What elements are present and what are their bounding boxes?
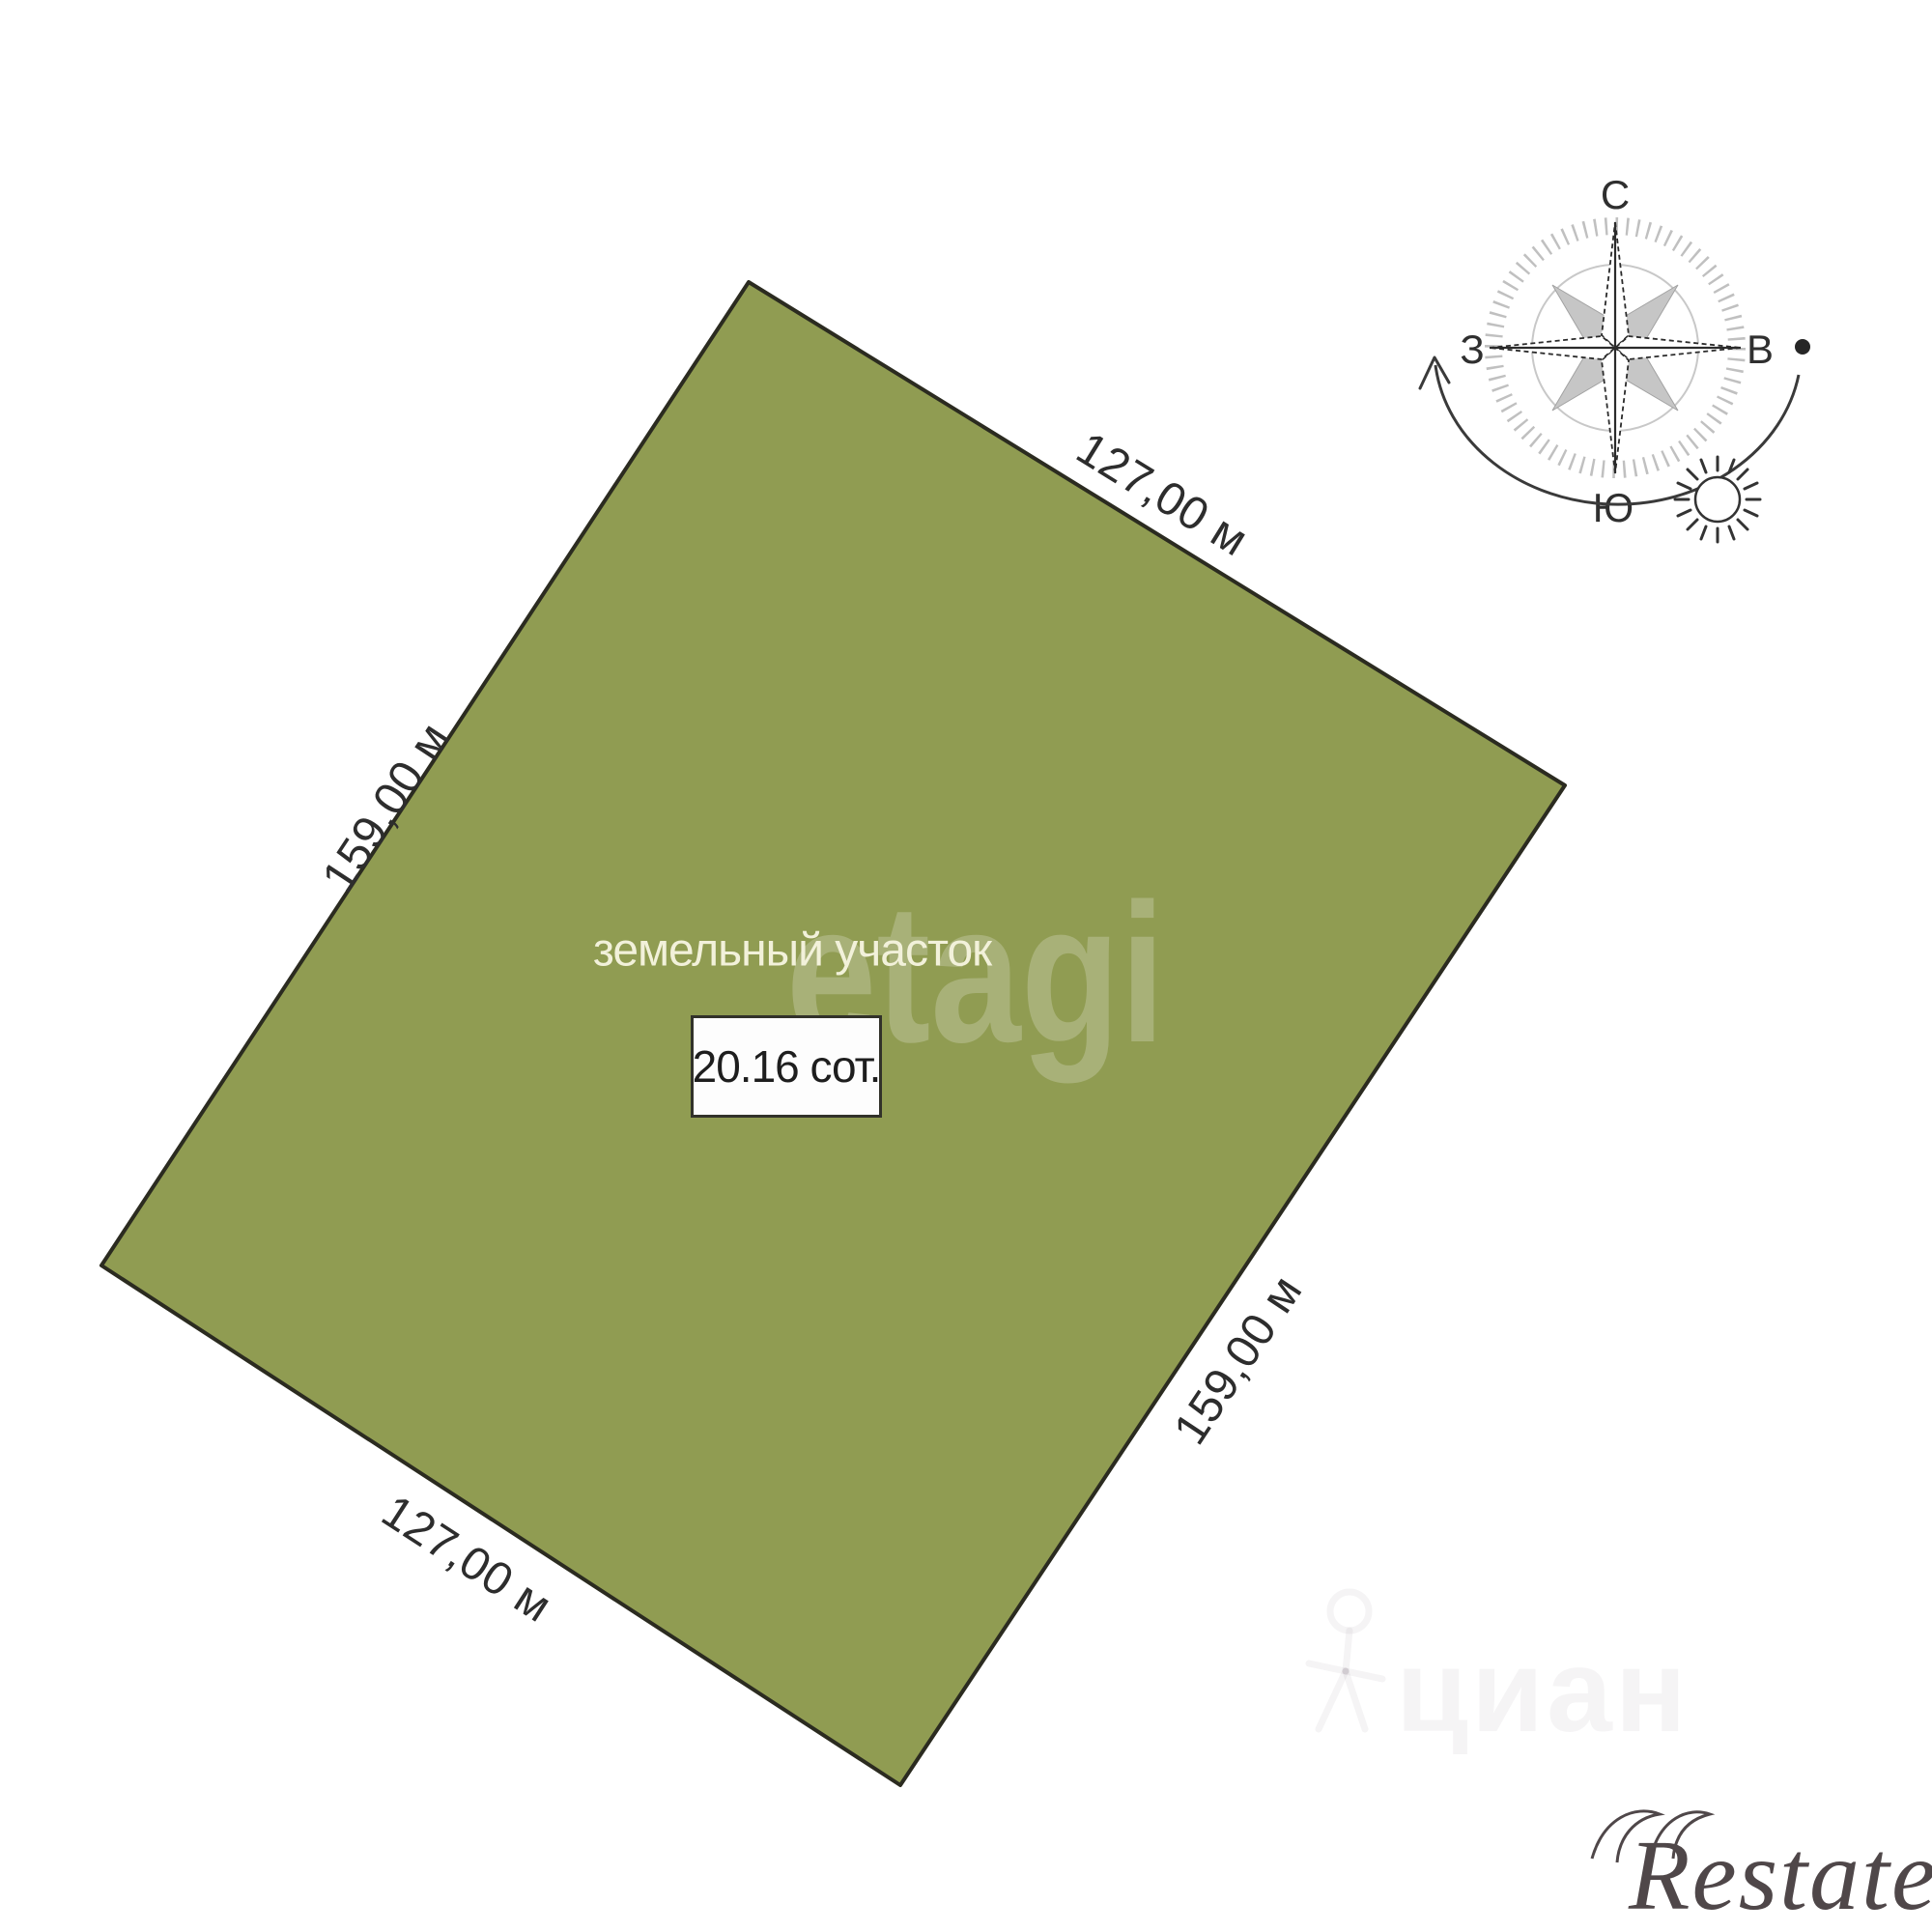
east-dot <box>1795 339 1810 355</box>
area-value: 20.16 сот. <box>693 1040 881 1093</box>
land-plot-diagram: etagi 127,00 м 159,00 м 159,00 м 127,00 … <box>0 0 1932 1932</box>
plot-type-label: земельный участок <box>593 924 991 978</box>
compass-north-label: С <box>1601 172 1630 217</box>
compass-south-label: Ю <box>1593 485 1634 530</box>
sun-path-arrow <box>1420 357 1449 388</box>
compass-rose: С Ю З В <box>1372 135 1874 589</box>
watermark-restate: Restate <box>1584 1799 1932 1932</box>
compass-east-label: В <box>1747 327 1774 372</box>
sun-icon <box>1675 457 1760 542</box>
watermark-cian: циан <box>1290 1584 1690 1758</box>
watermark-cian-text: циан <box>1396 1623 1690 1758</box>
watermark-restate-text: Restate <box>1629 1826 1932 1926</box>
person-icon <box>1290 1584 1396 1739</box>
compass-west-label: З <box>1460 327 1484 372</box>
area-box: 20.16 сот. <box>691 1015 882 1118</box>
